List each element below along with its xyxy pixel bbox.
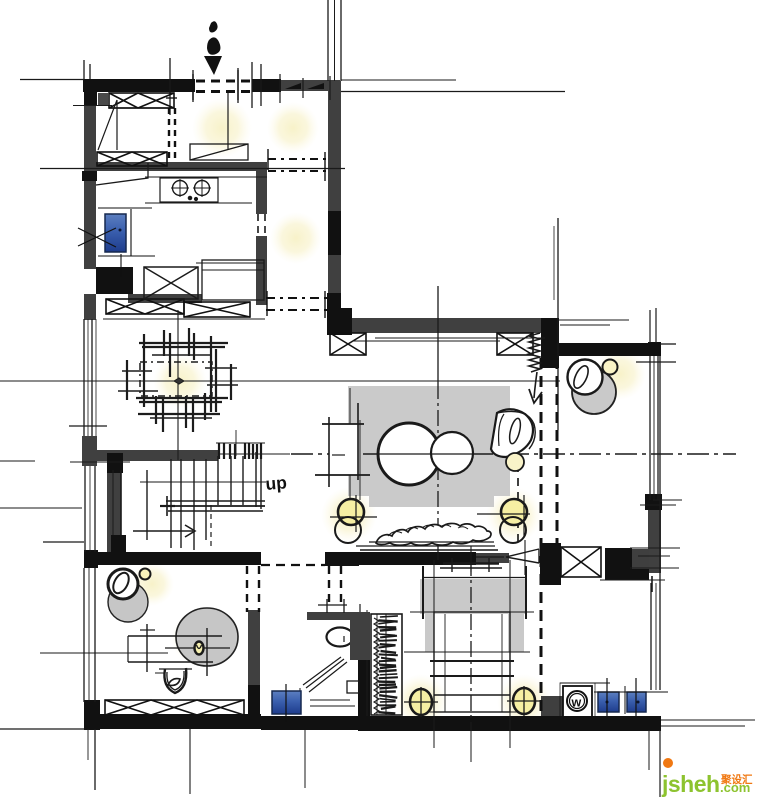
svg-text:up: up [265, 472, 288, 494]
svg-text:w: w [571, 696, 582, 710]
svg-text:jsheh: jsheh [661, 771, 720, 797]
svg-text:聚设汇: 聚设汇 [720, 773, 753, 786]
